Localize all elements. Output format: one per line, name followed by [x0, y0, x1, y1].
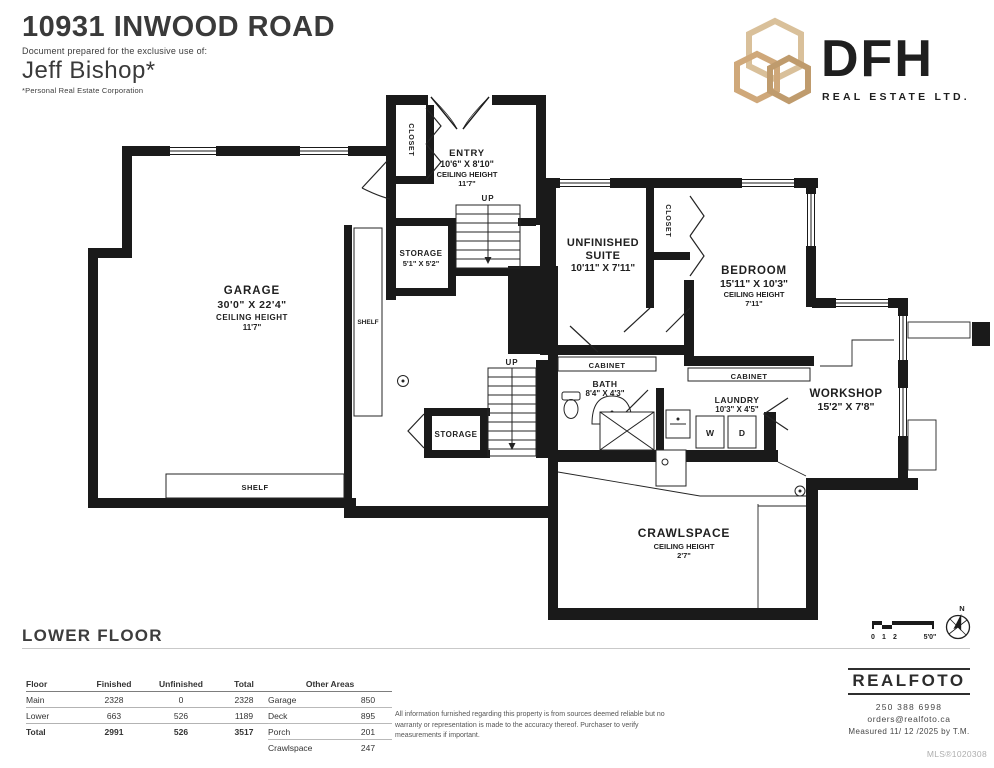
svg-text:11'7": 11'7" [458, 179, 476, 188]
svg-text:LAUNDRY: LAUNDRY [715, 395, 760, 405]
floor-rule [22, 648, 970, 649]
room-label-crawlspace: CRAWLSPACE CEILING HEIGHT 2'7" [638, 526, 730, 560]
col-header-finished: Finished [82, 679, 146, 689]
other-areas-row-garage: Garage 850 [268, 692, 392, 708]
svg-text:11'7": 11'7" [243, 323, 262, 332]
disclaimer-text: All information furnished regarding this… [395, 710, 665, 742]
shower-fixture [600, 412, 654, 450]
svg-text:BEDROOM: BEDROOM [721, 265, 787, 277]
closet-label-bedroom: CLOSET [664, 204, 671, 237]
up-label-entry-stairs: UP [481, 194, 494, 203]
realfoto-email: orders@realfoto.ca [843, 714, 975, 724]
room-label-entry: ENTRY 10'6" X 8'10" CEILING HEIGHT 11'7" [437, 148, 498, 188]
svg-text:8'4" X 4'3": 8'4" X 4'3" [586, 389, 625, 398]
col-header-floor: Floor [26, 679, 82, 689]
svg-text:15'11" X 10'3": 15'11" X 10'3" [720, 278, 788, 290]
other-areas-table: Other Areas Garage 850 Deck 895 Porch 20… [268, 676, 392, 755]
mls-number: MLS®1020308 [905, 749, 987, 759]
svg-text:2'7": 2'7" [677, 551, 691, 560]
svg-text:WORKSHOP: WORKSHOP [810, 388, 883, 400]
svg-text:SUITE: SUITE [586, 250, 621, 262]
svg-text:GARAGE: GARAGE [224, 285, 280, 297]
svg-text:CEILING HEIGHT: CEILING HEIGHT [654, 542, 715, 551]
toilet-fixture [562, 392, 580, 419]
svg-text:BATH: BATH [593, 379, 618, 389]
svg-text:CEILING HEIGHT: CEILING HEIGHT [724, 290, 785, 299]
svg-text:10'11" X 7'11": 10'11" X 7'11" [571, 263, 636, 274]
room-label-garage: GARAGE 30'0" X 22'4" CEILING HEIGHT 11'7… [216, 285, 288, 332]
floor-plan: GARAGE 30'0" X 22'4" CEILING HEIGHT 11'7… [0, 0, 994, 768]
north-compass-icon: N [947, 604, 970, 639]
shelf-label-bottom: SHELF [241, 483, 268, 492]
svg-text:STORAGE: STORAGE [400, 249, 443, 258]
cabinet-label-bath: CABINET [589, 361, 626, 370]
up-label-lower-stairs: UP [505, 358, 518, 367]
svg-text:N: N [959, 604, 964, 613]
table-row-total: Total 2991 526 3517 [26, 724, 272, 739]
svg-text:10'3" X 4'5": 10'3" X 4'5" [715, 405, 759, 414]
svg-text:15'2" X 7'8": 15'2" X 7'8" [818, 401, 875, 413]
washer-label: W [706, 428, 715, 438]
svg-text:UNFINISHED: UNFINISHED [567, 237, 639, 249]
svg-text:2: 2 [893, 634, 897, 641]
svg-text:ENTRY: ENTRY [449, 148, 485, 159]
floorplan-page: 10931 INWOOD ROAD Document prepared for … [0, 0, 994, 768]
realfoto-phone: 250 388 6998 [843, 702, 975, 712]
room-label-workshop: WORKSHOP 15'2" X 7'8" [810, 388, 883, 413]
svg-text:CEILING HEIGHT: CEILING HEIGHT [216, 313, 288, 322]
entry-double-door [428, 95, 492, 129]
room-label-bedroom: BEDROOM 15'11" X 10'3" CEILING HEIGHT 7'… [720, 265, 788, 308]
room-label-storage-upper: STORAGE 5'1" X 5'2" [400, 249, 443, 268]
plan-walls [88, 95, 990, 620]
scale-bar: 0 1 2 5'0" [871, 621, 936, 641]
svg-text:5'0": 5'0" [924, 634, 937, 641]
table-row-main: Main 2328 0 2328 [26, 692, 272, 708]
stairs-upper [456, 205, 520, 268]
realfoto-block: REALFOTO 250 388 6998 orders@realfoto.ca… [843, 668, 975, 736]
col-header-unfinished: Unfinished [146, 679, 216, 689]
realfoto-rule-bottom [848, 693, 970, 695]
room-label-bath: BATH 8'4" X 4'3" [586, 379, 625, 398]
svg-text:1: 1 [882, 634, 886, 641]
other-areas-row-deck: Deck 895 [268, 708, 392, 724]
table-header-row: Floor Finished Unfinished Total [26, 676, 272, 692]
other-areas-row-crawlspace: Crawlspace 247 [268, 740, 392, 755]
room-label-storage-lower: STORAGE [435, 430, 478, 439]
svg-text:7'11": 7'11" [745, 299, 763, 308]
measured-by: Measured 11/ 12 /2025 by T.M. [843, 727, 975, 736]
col-header-total: Total [216, 679, 272, 689]
room-label-laundry: LAUNDRY 10'3" X 4'5" [715, 395, 760, 414]
other-areas-title: Other Areas [268, 676, 392, 692]
svg-text:0: 0 [871, 634, 875, 641]
other-areas-row-porch: Porch 201 [268, 724, 392, 740]
floor-name-label: LOWER FLOOR [22, 626, 163, 646]
shelf-label-side: SHELF [357, 319, 378, 326]
svg-text:CRAWLSPACE: CRAWLSPACE [638, 526, 730, 540]
dryer-label: D [739, 428, 745, 438]
svg-text:30'0" X 22'4": 30'0" X 22'4" [217, 299, 286, 311]
room-label-unfinished-suite: UNFINISHED SUITE 10'11" X 7'11" [567, 237, 639, 274]
closet-label-entry: CLOSET [407, 123, 414, 156]
stairs-lower [488, 368, 536, 456]
svg-text:5'1" X 5'2": 5'1" X 5'2" [403, 259, 440, 268]
cabinet-label-bedroom: CABINET [731, 372, 768, 381]
realfoto-wordmark: REALFOTO [843, 670, 975, 693]
table-row-lower: Lower 663 526 1189 [26, 708, 272, 724]
svg-text:CEILING HEIGHT: CEILING HEIGHT [437, 170, 498, 179]
svg-text:10'6" X 8'10": 10'6" X 8'10" [440, 159, 494, 169]
floor-area-table: Floor Finished Unfinished Total Main 232… [26, 676, 272, 739]
